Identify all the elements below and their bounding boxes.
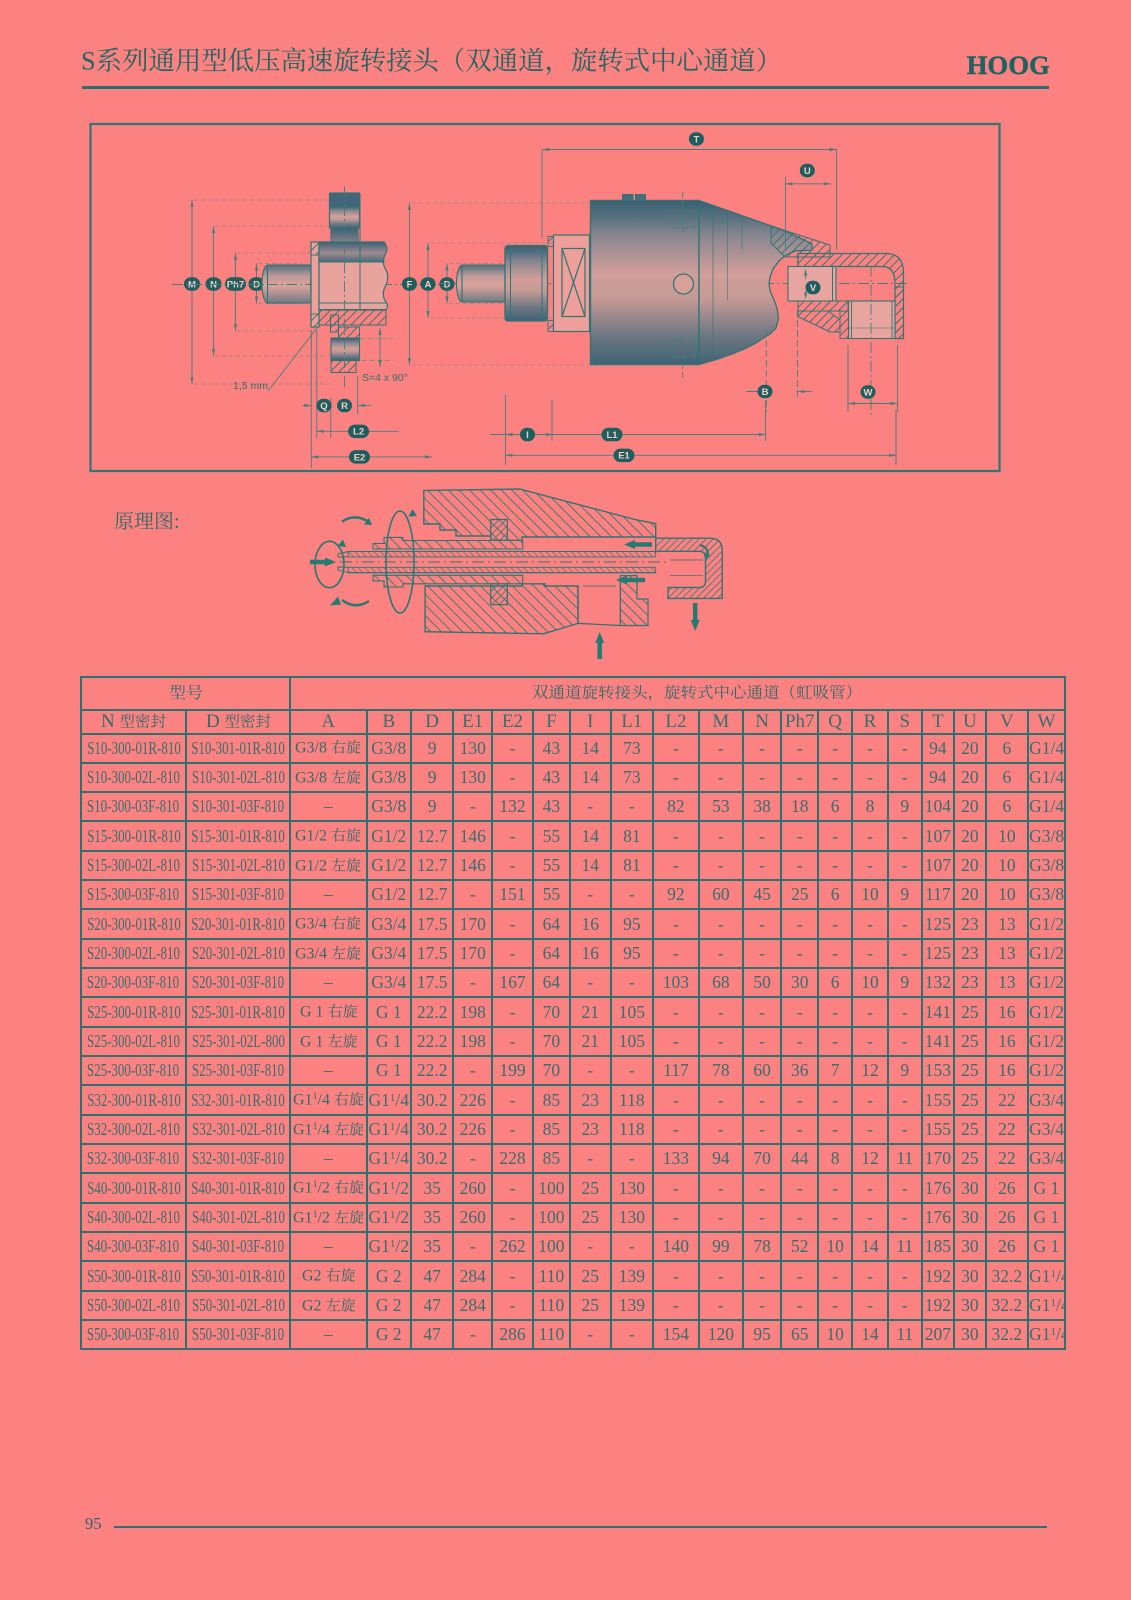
svg-text:G1/2: G1/2 bbox=[295, 858, 327, 875]
svg-text:D: D bbox=[444, 279, 451, 290]
svg-text:L1: L1 bbox=[606, 430, 618, 441]
svg-text:E2: E2 bbox=[354, 452, 366, 463]
svg-text:G 1: G 1 bbox=[300, 1034, 324, 1051]
svg-text:G3/8: G3/8 bbox=[295, 770, 327, 787]
svg-text:G3/4: G3/4 bbox=[295, 946, 327, 963]
svg-text:W: W bbox=[864, 387, 873, 398]
svg-text:D: D bbox=[206, 712, 220, 732]
svg-text:G1: G1 bbox=[293, 1122, 313, 1139]
svg-text:G1: G1 bbox=[293, 1180, 313, 1197]
svg-text:Q: Q bbox=[320, 401, 327, 412]
svg-text:/2: /2 bbox=[317, 1210, 329, 1227]
svg-text:I: I bbox=[526, 430, 529, 441]
svg-text:G1/2: G1/2 bbox=[295, 828, 327, 845]
svg-text:U: U bbox=[804, 166, 811, 177]
svg-text:L2: L2 bbox=[353, 427, 364, 438]
svg-text:A: A bbox=[425, 279, 432, 290]
svg-text:S=4 x 90°: S=4 x 90° bbox=[362, 372, 408, 384]
svg-text:F: F bbox=[407, 279, 413, 290]
svg-text:V: V bbox=[810, 283, 817, 294]
svg-text:E1: E1 bbox=[618, 451, 630, 462]
svg-text:T: T bbox=[693, 134, 699, 145]
svg-text:S: S bbox=[81, 47, 96, 76]
svg-text:G 1: G 1 bbox=[300, 1004, 324, 1021]
svg-text:G1: G1 bbox=[293, 1210, 313, 1227]
svg-text:1,5 mm: 1,5 mm bbox=[233, 380, 268, 392]
svg-text:B: B bbox=[762, 387, 769, 398]
svg-text:G3/8: G3/8 bbox=[295, 740, 327, 757]
svg-text:N: N bbox=[101, 712, 115, 732]
svg-text:G2: G2 bbox=[302, 1298, 322, 1315]
svg-text:/4: /4 bbox=[317, 1122, 329, 1139]
svg-text:G1: G1 bbox=[293, 1092, 313, 1109]
svg-text::: : bbox=[174, 511, 180, 533]
svg-text:/2: /2 bbox=[317, 1180, 329, 1197]
svg-text:/4: /4 bbox=[317, 1092, 329, 1109]
svg-text:R: R bbox=[341, 401, 348, 412]
svg-text:G2: G2 bbox=[302, 1268, 322, 1285]
svg-text:G3/4: G3/4 bbox=[295, 916, 327, 933]
